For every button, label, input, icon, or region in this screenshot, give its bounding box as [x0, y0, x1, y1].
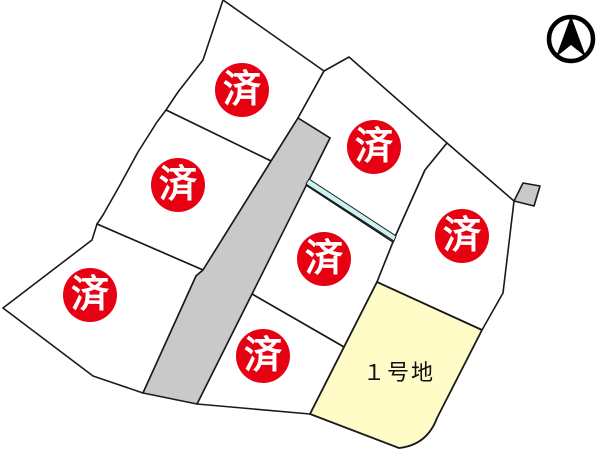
- road-stub-shape: [514, 183, 540, 206]
- sold-badge-left: 済: [151, 158, 205, 212]
- sold-badge-bottom-middle: 済: [236, 329, 290, 383]
- sold-badge-top-middle: 済: [347, 120, 401, 174]
- sold-badge-right: 済: [435, 209, 489, 263]
- lot-map-drawing: [0, 0, 600, 458]
- sold-badge-bottom-left: 済: [63, 268, 117, 322]
- sold-badge-top-left: 済: [215, 63, 269, 117]
- lot-1-label[interactable]: １号地: [363, 355, 435, 387]
- north-arrow-icon: [549, 16, 593, 61]
- lot-map: 済 済 済 済 済 済 済 １号地: [0, 0, 600, 458]
- sold-badge-middle: 済: [297, 232, 351, 286]
